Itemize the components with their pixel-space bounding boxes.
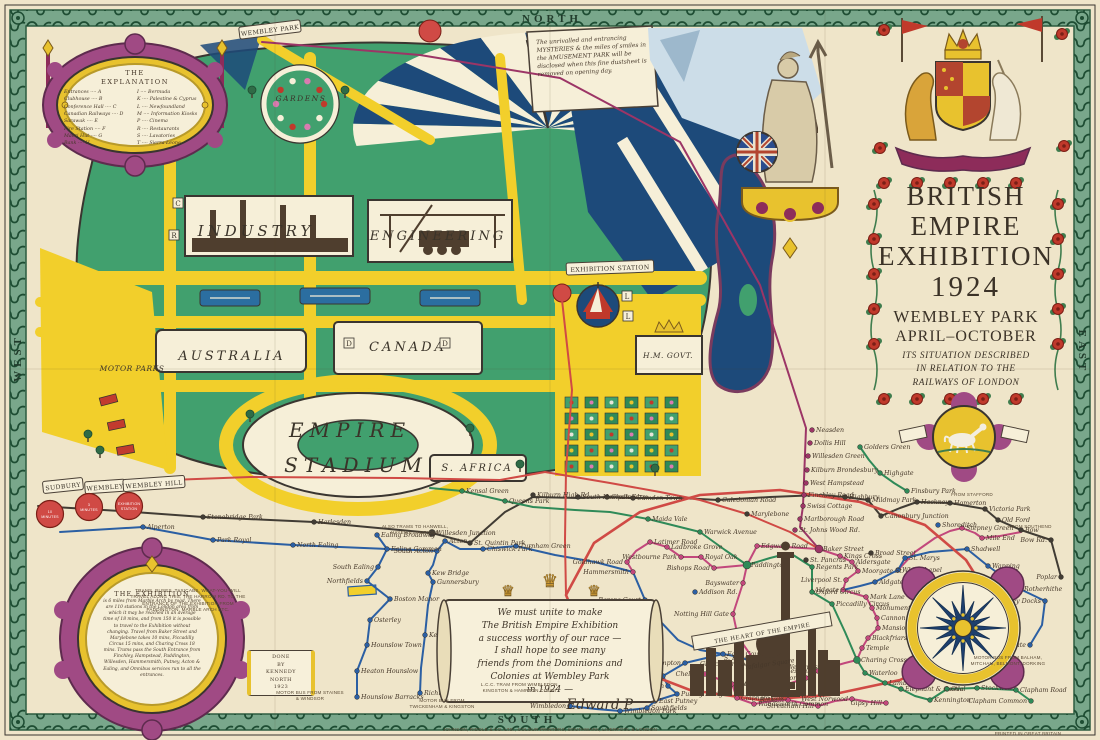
station-dot (854, 657, 861, 664)
tree-icon (516, 460, 524, 468)
station-dot (866, 636, 871, 641)
map-illustration: NORTH SOUTH WEST EAST (0, 0, 1100, 740)
station-dot (211, 538, 216, 543)
station-dot (618, 709, 623, 714)
rose-center (981, 397, 985, 401)
station-label: Mile End (985, 535, 1015, 542)
station-dot (804, 558, 809, 563)
station-label: Homerton (953, 500, 986, 507)
station-label: Marylebone (750, 511, 789, 518)
station-dot (666, 684, 671, 689)
station-dot (312, 520, 317, 525)
station-dot (646, 517, 651, 522)
station-dot (884, 701, 889, 706)
rose-center (915, 181, 919, 185)
station-label: Goldhawk Road (573, 559, 623, 566)
station-label: Maida Vale (651, 516, 688, 523)
station-dot (793, 528, 798, 533)
station-dot (899, 687, 904, 692)
pavilion-label: ENGINEERING (369, 229, 506, 244)
station-dot (141, 525, 146, 530)
station-label: Swiss Cottage (807, 503, 853, 510)
station-label: Ealing Broadway (380, 532, 436, 539)
flower-dot (630, 433, 634, 437)
station-label: Hammersmith (582, 569, 629, 576)
rose-center (878, 146, 882, 150)
compass-petal (961, 613, 964, 616)
minute-circle: 3MINUTES (76, 494, 103, 521)
svg-text:3: 3 (88, 503, 90, 507)
flower-dot (630, 465, 634, 469)
station-label: Kensal Green (465, 488, 509, 495)
flower-dot (650, 433, 654, 437)
station-label: Clapham Common (968, 698, 1027, 705)
flower-dot (277, 87, 283, 93)
station-label: Notting Hill Gate (673, 611, 729, 618)
station-dot (808, 441, 813, 446)
station-dot (810, 428, 815, 433)
rose-center (1014, 181, 1018, 185)
station-dot (431, 580, 436, 585)
legend-letter: L (626, 313, 631, 321)
station-label: Old Ford (1002, 517, 1030, 524)
station-label: Stonebridge Park (207, 514, 263, 521)
flower-dot (304, 124, 310, 130)
svg-text:STATION: STATION (121, 507, 138, 511)
rose-center (1056, 342, 1060, 346)
rose-center (882, 181, 886, 185)
station-label: Bayswater (704, 580, 740, 587)
station-label: Charing Cross (861, 657, 908, 664)
gardens-circle (261, 65, 339, 143)
station-dot (568, 704, 573, 709)
compass-petal (970, 635, 973, 638)
station-label: Turnham Green (520, 543, 571, 550)
station-dot (693, 590, 698, 595)
station-dot (376, 565, 381, 570)
compass-petal (974, 626, 977, 629)
rose-center (1056, 272, 1060, 276)
station-label: Caledonian Road (722, 497, 776, 504)
rose-center (872, 307, 876, 311)
legend-letter: C (175, 200, 180, 208)
flower-dot (289, 78, 295, 84)
station-dot (805, 468, 810, 473)
station-label: Wimbledon Park (624, 708, 677, 715)
station-label: Shadwell (971, 546, 1000, 553)
station-dot (965, 547, 970, 552)
station-dot (716, 498, 721, 503)
union-jack-shield-icon (737, 132, 777, 172)
station-dot (830, 602, 835, 607)
station-dot (928, 698, 933, 703)
station-dot (1049, 538, 1054, 543)
station-dot (905, 489, 910, 494)
station-dot (801, 504, 806, 509)
flower-dot (590, 465, 594, 469)
station-dot (883, 681, 888, 686)
flower-dot (630, 401, 634, 405)
station-dot (875, 616, 880, 621)
station-dot (806, 454, 811, 459)
station-label: Finsbury Park (910, 488, 956, 495)
flower-dot (670, 433, 674, 437)
flower-dot (590, 417, 594, 421)
station-dot (679, 555, 684, 560)
flower-dot (610, 433, 614, 437)
station-label: Royal Oak (704, 554, 738, 561)
station-dot (876, 626, 881, 631)
compass-petal (952, 635, 955, 638)
legend-letter: L (625, 293, 630, 301)
rose-center (882, 397, 886, 401)
station-dot (1028, 643, 1033, 648)
flower-dot (670, 401, 674, 405)
flower-dot (316, 87, 322, 93)
station-dot (1014, 688, 1019, 693)
flower-dot (610, 417, 614, 421)
rose-center (948, 397, 952, 401)
station-dot (983, 507, 988, 512)
station-label: Finchley Road (807, 492, 854, 499)
station-dot (375, 533, 380, 538)
station-label: Bow Rd. (1019, 537, 1047, 544)
station-dot (201, 515, 206, 520)
compass-petal (970, 617, 973, 620)
station-dot (648, 540, 653, 545)
station-dot (1043, 599, 1048, 604)
station-label: Mark Lane (869, 594, 905, 601)
station-label: North Ealing (296, 542, 338, 549)
water-pools (200, 288, 480, 306)
flower-dot (670, 417, 674, 421)
rose-center (1014, 397, 1018, 401)
station-label: Hounslow Town (370, 642, 422, 649)
station-label: Dollis Hill (813, 440, 846, 447)
station-dot (531, 493, 536, 498)
flower-dot (316, 115, 322, 121)
rose-center (1062, 144, 1066, 148)
tree-icon (248, 86, 256, 94)
station-dot (683, 661, 688, 666)
flower-dot (590, 401, 594, 405)
station-label: Westbourne Park (622, 554, 677, 561)
station-dot (879, 514, 884, 519)
compass-petal (961, 639, 964, 642)
legend-letter: D (346, 340, 352, 348)
flower-dot (650, 401, 654, 405)
station-label: Warwick Avenue (704, 529, 757, 536)
station-dot (355, 669, 360, 674)
station-dot (810, 565, 815, 570)
border-label-west: WEST (12, 334, 24, 382)
pavilion-label: S. AFRICA (441, 463, 512, 474)
svg-text:10: 10 (48, 510, 52, 514)
station-label: Moorgate St. (861, 568, 904, 575)
rose-center (1056, 307, 1060, 311)
crown-icon: ♛ (501, 582, 514, 600)
station-dot (388, 597, 393, 602)
tree-icon (651, 464, 659, 472)
legend-letter: D (442, 340, 448, 348)
rose-center (1056, 237, 1060, 241)
compass-petal (948, 626, 951, 629)
station-dot (996, 518, 1001, 523)
station-label: Heaton Hounslow (360, 668, 419, 675)
station-dot (798, 517, 803, 522)
station-dot (864, 595, 869, 600)
station-dot (675, 692, 680, 697)
pavilion-label: GARDENS (276, 94, 327, 103)
flower-dot (630, 449, 634, 453)
station-label: Mildmay Park (871, 497, 917, 504)
station-label: Neasden (815, 427, 844, 434)
pavilion-label: AUSTRALIA (177, 349, 285, 364)
crown-icon: ♛ (587, 582, 600, 600)
svg-text:EXHIBITION: EXHIBITION (118, 502, 141, 506)
tree-icon (466, 424, 474, 432)
station-dot (860, 646, 865, 651)
pavilion-label: INDUSTRY (197, 222, 315, 240)
station-label: Clapham Road (1020, 687, 1067, 694)
station-label: Addison Rd. (698, 589, 737, 596)
station-dot (365, 579, 370, 584)
station-label: Alperton (146, 524, 175, 531)
station-dot (745, 512, 750, 517)
station-label: Willesden Junction (436, 530, 496, 537)
station-label: Kew Bridge (431, 570, 469, 577)
station-dot (752, 702, 757, 707)
station-dot (743, 561, 751, 569)
rose-center (872, 272, 876, 276)
station-label: Regents Park (815, 564, 859, 571)
flower-dot (570, 449, 574, 453)
border-label-east: EAST (1076, 330, 1088, 375)
flower-dot (630, 417, 634, 421)
station-label: Hounslow Barracks (360, 694, 424, 701)
tree-icon (96, 446, 104, 454)
station-label: Canonbury Junction (885, 513, 949, 520)
station-label: Kennington (933, 697, 971, 704)
rose-center (981, 181, 985, 185)
station-dot (423, 633, 428, 638)
station-dot (731, 612, 736, 617)
station-dot (863, 671, 868, 676)
minute-circle: 10MINUTES (37, 501, 64, 528)
flower-dot (277, 115, 283, 121)
station-label: Ladbroke Grove (670, 544, 723, 551)
flower-dot (570, 465, 574, 469)
compass-rose (902, 567, 1024, 689)
flower-dot (590, 433, 594, 437)
station-dot (735, 696, 740, 701)
rose-center (872, 237, 876, 241)
flower-dot (670, 449, 674, 453)
station-dot (1059, 575, 1064, 580)
station-label: Victoria Park (989, 506, 1031, 513)
rose-center (1056, 202, 1060, 206)
station-label: West Hampstead (810, 480, 864, 487)
station-label: Highgate (883, 470, 914, 477)
station-dot (355, 695, 360, 700)
flower-dot (304, 78, 310, 84)
station-label: Willesden Green (812, 453, 865, 460)
station-dot (698, 530, 703, 535)
flower-dot (650, 417, 654, 421)
station-dot (631, 570, 636, 575)
rose-center (915, 397, 919, 401)
station-dot (858, 445, 863, 450)
lake-island (739, 284, 757, 316)
station-dot (426, 571, 431, 576)
flower-dot (650, 449, 654, 453)
station-label: Shoreditch (942, 522, 977, 529)
station-label: Poplar (1035, 574, 1058, 581)
station-dot (980, 536, 985, 541)
station-label: South Ealing (333, 564, 374, 571)
rose-center (882, 28, 886, 32)
station-label: Park Royal (216, 537, 251, 544)
station-dot (712, 566, 717, 571)
station-label: Northfields (326, 578, 364, 585)
station-label: Bishops Road (666, 565, 710, 572)
station-label: Marlborough Road (803, 516, 864, 523)
station-dot (804, 481, 809, 486)
station-label: Wimbledon (530, 703, 566, 710)
border-label-north: NORTH (522, 13, 582, 25)
station-dot (443, 539, 448, 544)
station-dot (503, 499, 508, 504)
station-dot (878, 471, 883, 476)
station-dot (755, 544, 760, 549)
station-label: Monument (875, 605, 911, 612)
station-label: Baker Street (822, 546, 864, 553)
pavilion-label: STADIUM (284, 453, 428, 477)
flower-dot (590, 449, 594, 453)
station-label: Hackney (920, 499, 949, 506)
rose-center (948, 181, 952, 185)
hm-govt-crown-icon (655, 320, 683, 332)
rose-center (872, 202, 876, 206)
pavilion-label: CANADA (369, 340, 447, 355)
station-label: South Acton (394, 548, 433, 555)
station-label: St. Pancras (810, 557, 847, 564)
flower-dot (610, 465, 614, 469)
station-label: Bow (1024, 527, 1039, 534)
station-dot (460, 489, 465, 494)
station-label: Queens Park (509, 498, 550, 505)
tree-icon (341, 86, 349, 94)
station-dot (975, 686, 980, 691)
station-dot (1029, 699, 1034, 704)
station-label: Liverpool St. (800, 577, 842, 584)
station-marker-red (419, 20, 441, 42)
map-banner: WEMBLEY (85, 479, 126, 494)
station-dot (699, 555, 704, 560)
station-label: Oval (951, 686, 966, 693)
station-label: Streatham Hill (767, 703, 814, 710)
station-label: Waterloo (869, 670, 898, 677)
tree-icon (246, 410, 254, 418)
border-label-south: SOUTH (498, 714, 557, 726)
station-dot (802, 493, 807, 498)
station-dot (986, 564, 991, 569)
station-label: Camden Town (637, 495, 682, 502)
station-label: East Putney (658, 698, 698, 705)
flower-dot (610, 449, 614, 453)
station-label: St. Johns Wood Rd. (799, 527, 860, 534)
station-dot (291, 543, 296, 548)
pavilion-label: EMPIRE (288, 418, 411, 442)
station-label: Aldersgate (855, 559, 891, 566)
station-dot (741, 581, 746, 586)
station-dot (365, 643, 370, 648)
station-dot (468, 541, 473, 546)
flower-dot (289, 124, 295, 130)
station-label: Aldgate (813, 587, 839, 594)
compass-petal (952, 617, 955, 620)
pavilion-label: H.M. GOVT. (642, 351, 693, 360)
station-label: Osterley (374, 617, 401, 624)
station-dot (936, 523, 941, 528)
station-label: Rotherhithe (1023, 586, 1063, 593)
station-dot (844, 578, 849, 583)
station-label: Kilburn Brondesbury (810, 467, 878, 474)
legend-letter: R (171, 232, 177, 240)
station-dot (368, 618, 373, 623)
exhibition-map-poster: NORTH SOUTH WEST EAST (0, 0, 1100, 740)
station-label: Temple (866, 645, 889, 652)
station-label: Golders Green (864, 444, 910, 451)
tree-icon (84, 430, 92, 438)
station-label: Gunnersbury (437, 579, 479, 586)
minute-circle: EXHIBITIONSTATION (116, 493, 143, 520)
station-dot (481, 547, 486, 552)
station-label: Acton (448, 538, 467, 545)
station-dot (1019, 528, 1024, 533)
station-label: Blackfriars (871, 635, 908, 642)
station-label: Harlesden (317, 519, 351, 526)
flower-dot (570, 433, 574, 437)
map-banner: EXHIBITION STATION (566, 260, 654, 275)
flower-dot (610, 401, 614, 405)
station-label: St. Marys (909, 555, 941, 562)
station-dot (815, 545, 823, 553)
station-dot (873, 580, 878, 585)
rose-center (1060, 32, 1064, 36)
station-label: Gipsy Hill (851, 700, 882, 707)
station-label: Boston Manor (393, 596, 440, 603)
rose-center (872, 342, 876, 346)
svg-text:MINUTES: MINUTES (80, 508, 98, 512)
svg-text:MINUTES: MINUTES (41, 515, 59, 519)
station-dot (385, 547, 390, 552)
flower-dot (670, 465, 674, 469)
